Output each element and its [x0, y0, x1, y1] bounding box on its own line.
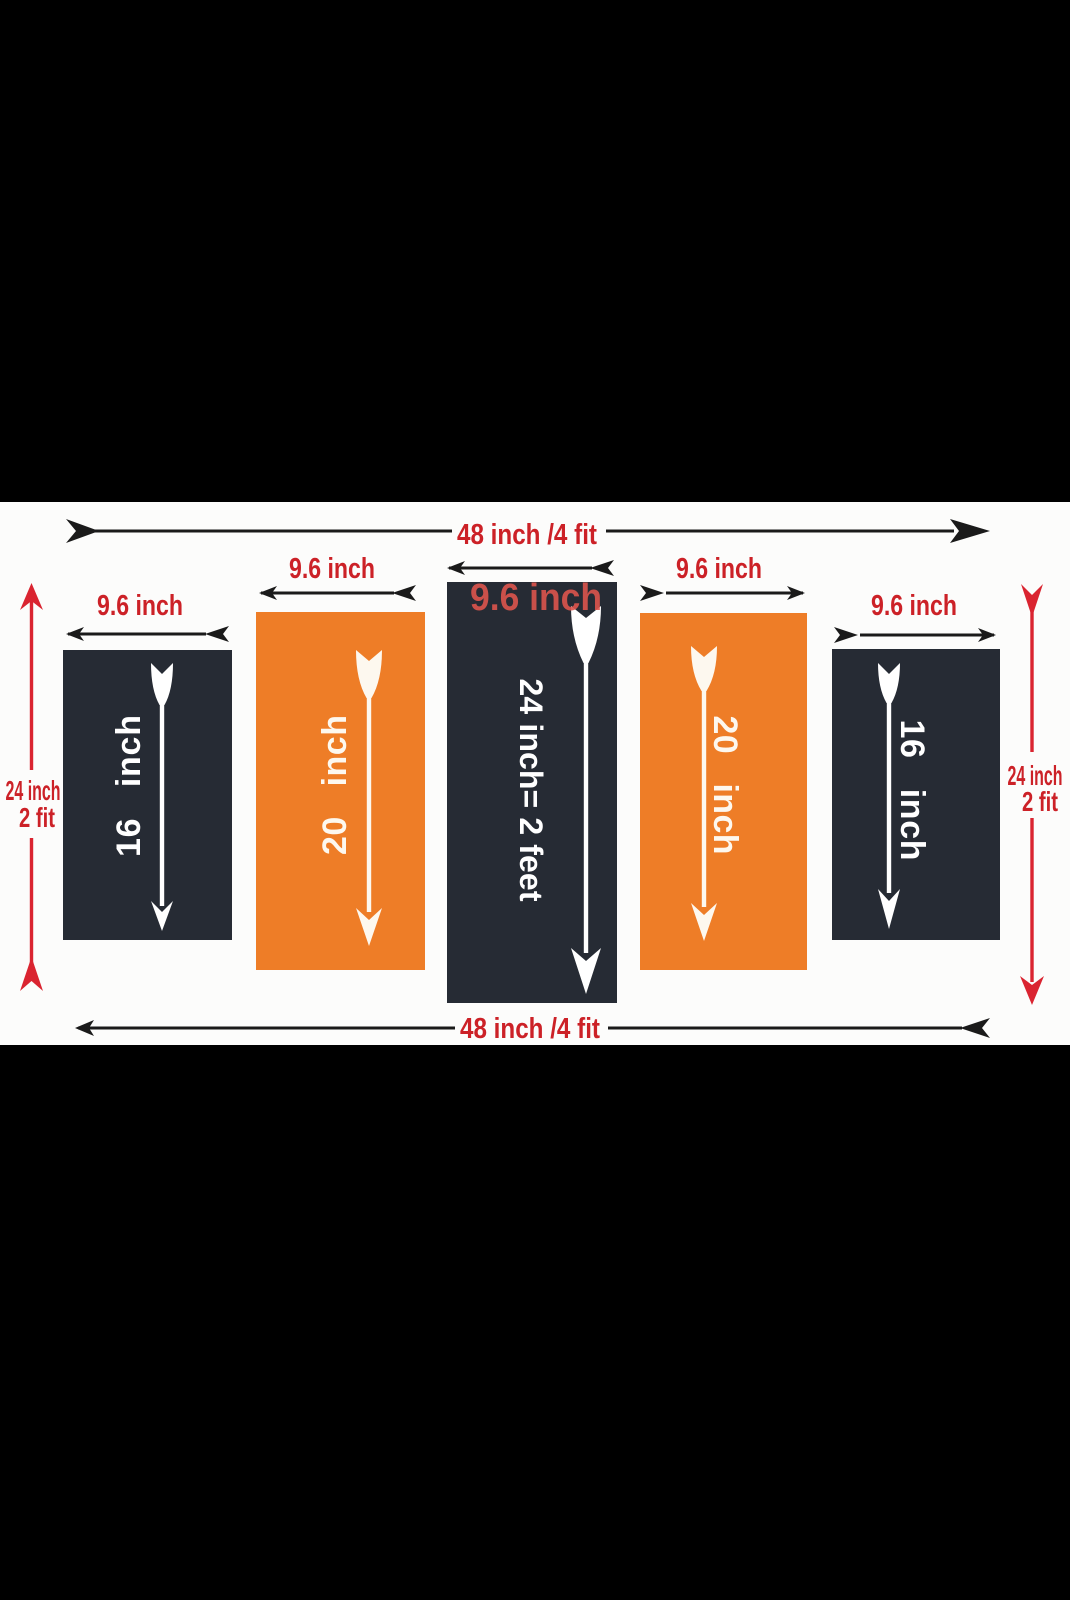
svg-text:48 inch /4 fit: 48 inch /4 fit: [460, 1013, 600, 1045]
svg-text:48 inch /4 fit: 48 inch /4 fit: [457, 519, 597, 551]
svg-text:2 fit: 2 fit: [19, 802, 55, 833]
svg-text:20 inch: 20 inch: [316, 715, 354, 855]
svg-text:9.6 inch: 9.6 inch: [676, 553, 762, 585]
svg-text:9.6 inch: 9.6 inch: [97, 590, 183, 622]
svg-text:2 fit: 2 fit: [1022, 786, 1058, 817]
svg-text:20 inch: 20 inch: [706, 716, 744, 855]
svg-text:24 inch= 2 feet: 24 inch= 2 feet: [513, 679, 549, 902]
svg-text:9.6 inch: 9.6 inch: [470, 577, 602, 619]
svg-text:9.6 inch: 9.6 inch: [871, 590, 957, 622]
svg-text:9.6 inch: 9.6 inch: [289, 553, 375, 585]
svg-text:16 inch: 16 inch: [893, 720, 931, 861]
svg-text:16 inch: 16 inch: [110, 715, 148, 857]
